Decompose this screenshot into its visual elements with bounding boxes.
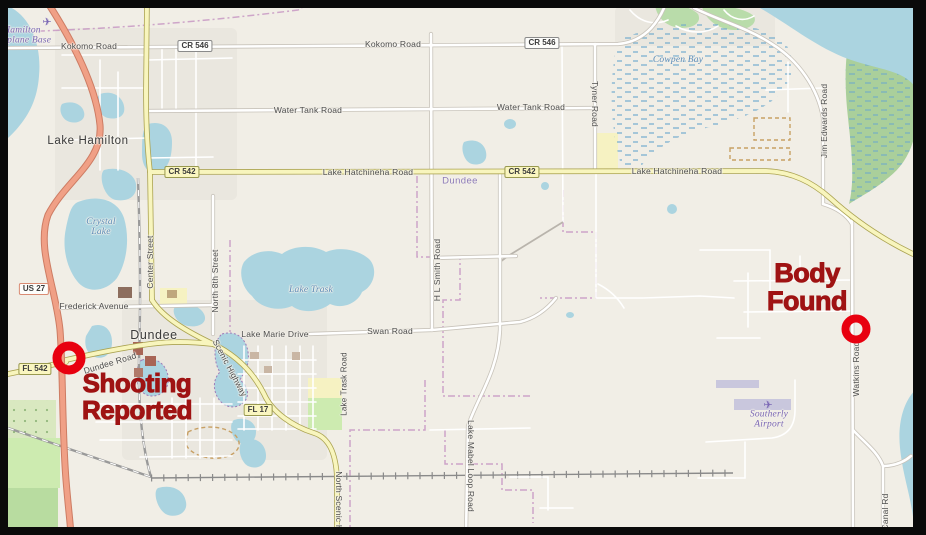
road-label-canal-rd: Canal Rd [880,493,890,527]
road-label-north-scenic-highway: North Scenic Highway [334,471,344,527]
road-label-north-8th-street: North 8th Street [210,249,220,312]
water-label-cowpen-bay: Cowpen Bay [652,56,704,66]
road-label-frederick-avenue: Frederick Avenue [59,301,128,311]
incident-circle-body-found [842,315,871,344]
road-label-water-tank-2: Water Tank Road [497,102,565,112]
poi-label-seaplane-base: Hamilton Seaplane Base [8,26,53,47]
annotation-body-line2: Found [767,287,847,315]
annotation-shooting-line1: Shooting [82,370,192,397]
shield-cr-546-east: CR 546 [524,37,559,49]
road-label-lake-marie-drive: Lake Marie Drive [241,329,308,339]
place-label-lake-hamilton: Lake Hamilton [47,135,128,147]
road-label-lake-hatchineha-1: Lake Hatchineha Road [323,167,413,177]
shield-fl-542: FL 542 [18,363,51,375]
road-label-center-street: Center Street [145,235,155,288]
annotation-shooting-line2: Reported [82,397,192,424]
road-label-kokomo-1: Kokomo Road [61,41,117,51]
road-label-jim-edwards-road: Jim Edwards Road [819,84,829,159]
place-label-dundee-small: Dundee [442,176,478,187]
place-label-dundee: Dundee [130,328,177,342]
annotation-body-line1: Body [767,259,847,287]
map-canvas[interactable]: Kokomo Road Kokomo Road Water Tank Road … [8,8,913,527]
poi-label-southerly-airport: Southerly Airport [740,410,798,431]
road-label-lake-mabel-loop: Lake Mabel Loop Road [466,420,476,512]
water-label-crystal-lake: Crystal Lake [78,218,124,238]
road-label-lake-trask-road: Lake Trask Road [340,352,349,415]
incident-circle-shooting [53,342,86,375]
shield-cr-546-west: CR 546 [177,40,212,52]
annotation-body-found: Body Found [767,259,847,315]
shield-us-27: US 27 [19,283,49,295]
shield-fl-17: FL 17 [244,404,273,416]
road-label-kokomo-2: Kokomo Road [365,39,421,49]
road-label-water-tank-1: Water Tank Road [274,105,342,115]
road-label-scenic-highway: Scenic Highway [211,338,250,399]
shield-cr-542-east: CR 542 [504,166,539,178]
road-label-swan-road: Swan Road [367,326,413,336]
screenshot-frame: Kokomo Road Kokomo Road Water Tank Road … [0,0,926,535]
annotation-shooting-reported: Shooting Reported [82,370,192,424]
water-label-lake-trask: Lake Trask [271,286,351,296]
shield-cr-542-west: CR 542 [164,166,199,178]
road-label-watkins-road: Watkins Road [851,342,861,397]
road-label-lake-hatchineha-2: Lake Hatchineha Road [632,166,722,176]
road-label-tyner-road: Tyner Road [590,81,600,127]
road-label-hl-smith-road: H L Smith Road [432,239,442,301]
